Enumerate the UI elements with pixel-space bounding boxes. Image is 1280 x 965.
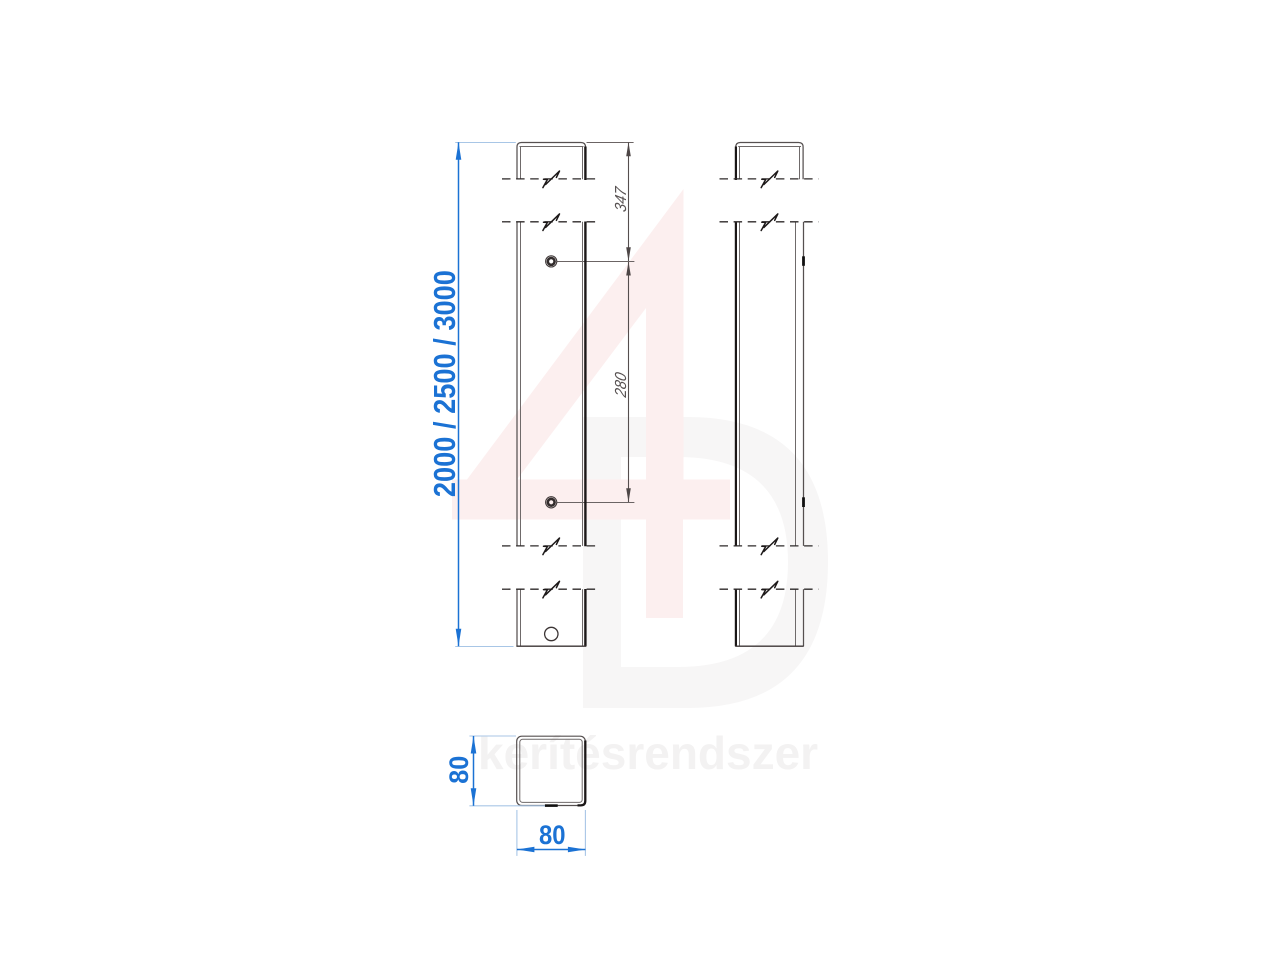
svg-text:2000 / 2500 / 3000: 2000 / 2500 / 3000 [427, 270, 462, 497]
svg-text:80: 80 [444, 756, 474, 784]
svg-text:80: 80 [539, 820, 566, 850]
svg-text:280: 280 [612, 371, 630, 400]
svg-text:kerítésrendszer: kerítésrendszer [478, 727, 818, 779]
